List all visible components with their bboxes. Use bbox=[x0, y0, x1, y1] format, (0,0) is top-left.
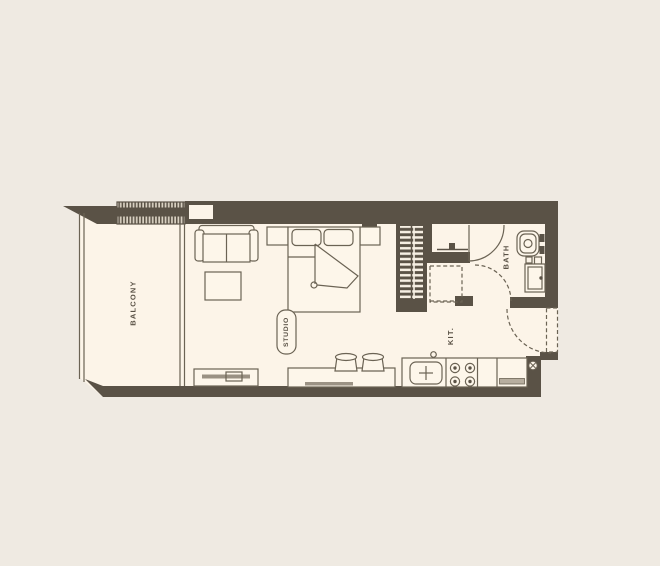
washbasin-icon bbox=[525, 264, 545, 292]
tv-console-icon bbox=[194, 369, 258, 386]
bath-label: BATH bbox=[502, 244, 511, 269]
balcony-louver-screen-icon bbox=[117, 202, 185, 224]
studio-label: STUDIO bbox=[283, 317, 290, 347]
pillow-icon bbox=[292, 230, 321, 246]
coffee-table-icon bbox=[205, 272, 241, 300]
bath-bottom-wall bbox=[510, 297, 558, 308]
sofa-icon bbox=[195, 226, 258, 263]
bar-stool-icon bbox=[362, 354, 384, 372]
drain-symbol-icon bbox=[529, 361, 537, 369]
tap-wall bbox=[424, 252, 470, 263]
pillow-icon bbox=[324, 230, 353, 246]
floor-plan-drawing: STUDIO bbox=[0, 0, 660, 566]
top-wall bbox=[185, 201, 557, 224]
bottom-wall bbox=[103, 386, 541, 397]
studio-label-pill: STUDIO bbox=[277, 310, 296, 354]
floor-plan: STUDIO bbox=[0, 0, 660, 566]
wall-niche bbox=[189, 205, 213, 219]
nightstand-right-icon bbox=[360, 227, 380, 245]
right-wall bbox=[545, 201, 558, 303]
balcony-label: BALCONY bbox=[129, 280, 138, 325]
hall-stub-wall bbox=[455, 296, 473, 306]
refrigerator-icon bbox=[500, 379, 525, 385]
nightstand-left-icon bbox=[267, 227, 288, 245]
kitchen-label: KIT. bbox=[446, 327, 455, 345]
wardrobe-icon bbox=[396, 222, 427, 312]
bar-stool-icon bbox=[335, 354, 357, 372]
